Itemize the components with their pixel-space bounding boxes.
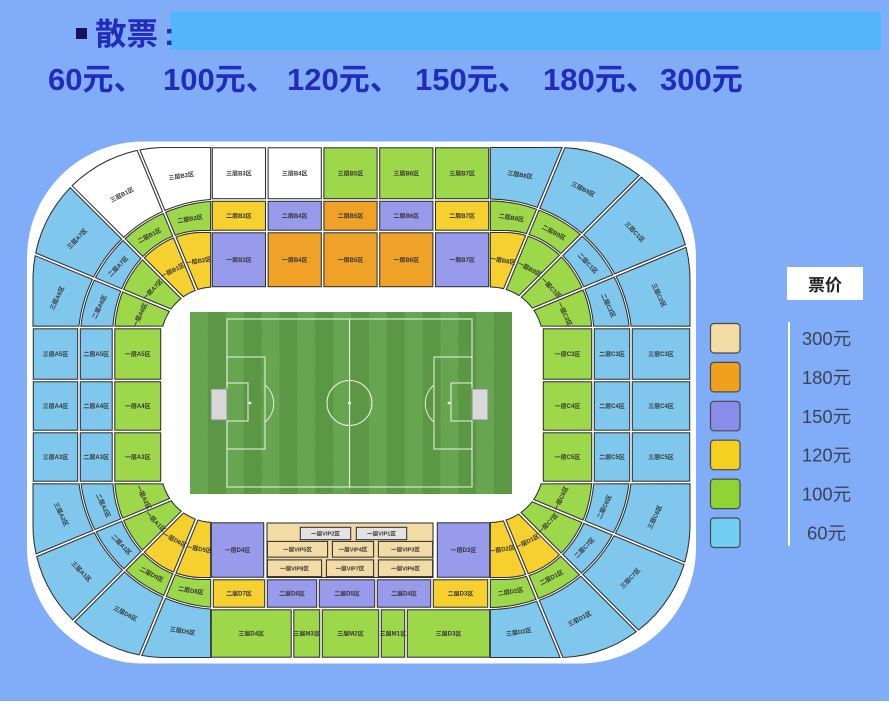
svg-text:VIP3: VIP3	[402, 547, 414, 553]
svg-text:D6: D6	[291, 592, 299, 598]
svg-text:A5: A5	[137, 352, 145, 358]
svg-text:B4: B4	[294, 258, 302, 264]
svg-text:D3: D3	[463, 548, 471, 554]
svg-text:A5: A5	[95, 352, 103, 358]
svg-text:A5: A5	[55, 352, 63, 358]
svg-text:C5: C5	[567, 455, 575, 461]
svg-text:M2: M2	[349, 632, 358, 638]
svg-text:VIP7: VIP7	[347, 566, 359, 572]
svg-text:A3: A3	[55, 455, 63, 461]
svg-text:C5: C5	[611, 455, 619, 461]
svg-text:C3: C3	[660, 352, 668, 358]
svg-text:M1: M1	[392, 632, 401, 638]
svg-text:A4: A4	[95, 404, 103, 410]
svg-text:B7: B7	[461, 171, 469, 177]
svg-text:180: 180	[802, 367, 833, 388]
svg-text:B5: B5	[350, 171, 358, 177]
svg-text:D4: D4	[237, 548, 245, 554]
svg-text:B3: B3	[238, 171, 246, 177]
svg-text:150: 150	[802, 406, 833, 427]
svg-text:A4: A4	[137, 404, 145, 410]
svg-text:C5: C5	[660, 455, 668, 461]
svg-text:60: 60	[807, 523, 828, 544]
svg-text:D4: D4	[250, 632, 258, 638]
svg-text:300: 300	[660, 62, 712, 97]
svg-text:B4: B4	[294, 214, 302, 220]
svg-text:C3: C3	[567, 352, 575, 358]
svg-text:A3: A3	[137, 455, 145, 461]
svg-text:100: 100	[163, 62, 215, 97]
svg-text:B7: B7	[461, 258, 469, 264]
svg-text:180: 180	[543, 62, 595, 97]
svg-text:A4: A4	[55, 404, 63, 410]
svg-text:C3: C3	[611, 352, 619, 358]
svg-text:D3: D3	[460, 592, 468, 598]
svg-text:120: 120	[287, 62, 339, 97]
svg-text:B6: B6	[405, 258, 413, 264]
svg-text:B5: B5	[350, 214, 358, 220]
svg-text:VIP1: VIP1	[378, 532, 390, 538]
svg-text:VIP6: VIP6	[402, 566, 414, 572]
svg-text:B7: B7	[461, 214, 469, 220]
svg-text:150: 150	[415, 62, 467, 97]
svg-text:300: 300	[802, 328, 833, 349]
svg-text:A3: A3	[95, 455, 103, 461]
svg-text:C4: C4	[567, 404, 575, 410]
svg-text:D4: D4	[403, 592, 411, 598]
svg-text:100: 100	[802, 484, 833, 505]
svg-text:B3: B3	[238, 258, 246, 264]
svg-text:VIP4: VIP4	[350, 547, 363, 553]
svg-text:VIP2: VIP2	[322, 532, 334, 538]
svg-text:C4: C4	[660, 404, 668, 410]
svg-text:B6: B6	[405, 214, 413, 220]
svg-text:B6: B6	[405, 171, 413, 177]
svg-text:B3: B3	[238, 214, 246, 220]
svg-text:VIP5: VIP5	[294, 547, 306, 553]
svg-text:D7: D7	[238, 592, 246, 598]
svg-text::: :	[164, 16, 175, 52]
svg-text:B5: B5	[350, 258, 358, 264]
svg-text:D3: D3	[448, 632, 456, 638]
svg-text:C4: C4	[611, 404, 619, 410]
svg-text:VIP8: VIP8	[291, 566, 303, 572]
svg-text:120: 120	[802, 445, 833, 466]
svg-text:D5: D5	[346, 592, 354, 598]
svg-text:B4: B4	[294, 171, 302, 177]
svg-text:60: 60	[48, 62, 82, 97]
svg-text:M3: M3	[305, 632, 314, 638]
